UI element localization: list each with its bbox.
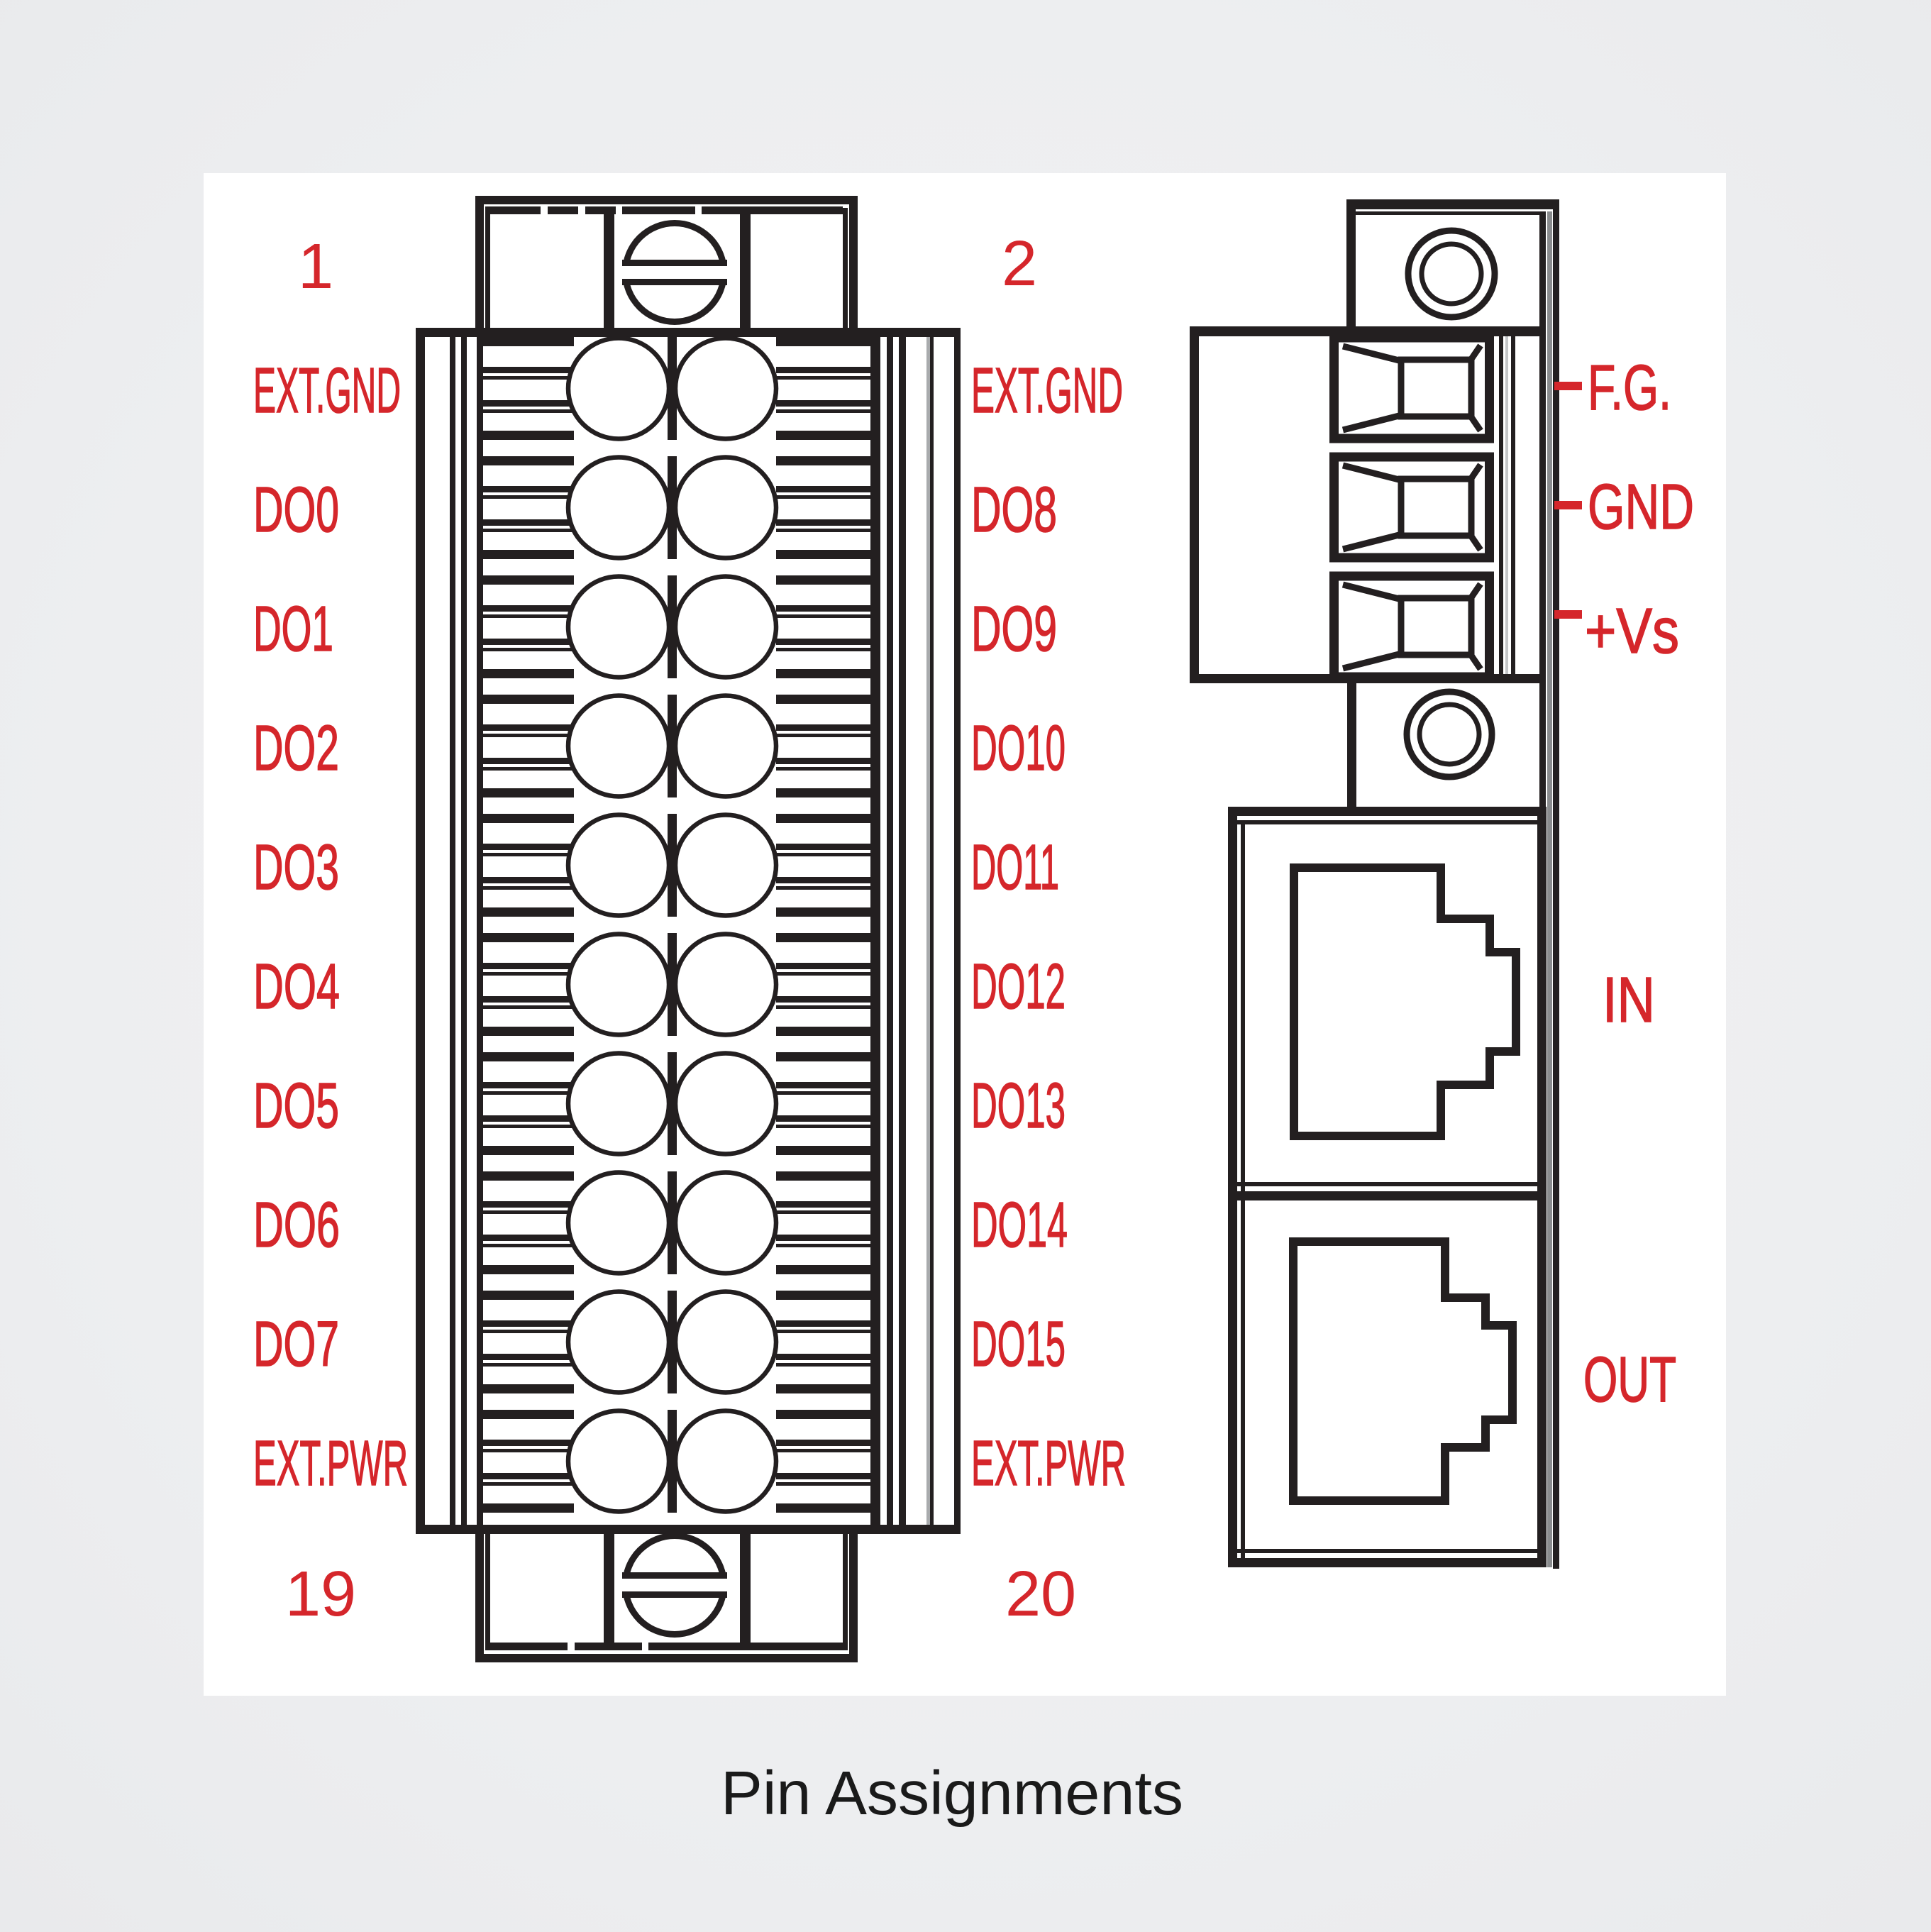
svg-text:OUT: OUT — [1583, 1345, 1676, 1415]
svg-text:DO15: DO15 — [971, 1309, 1066, 1380]
svg-text:EXT.GND: EXT.GND — [971, 355, 1123, 426]
svg-text:EXT.PWR: EXT.PWR — [971, 1428, 1126, 1499]
svg-text:DO8: DO8 — [971, 475, 1057, 546]
svg-text:DO3: DO3 — [253, 832, 339, 903]
svg-text:DO14: DO14 — [971, 1190, 1068, 1261]
svg-text:DO9: DO9 — [971, 594, 1057, 665]
svg-text:DO7: DO7 — [253, 1309, 339, 1380]
svg-text:Pin Assignments: Pin Assignments — [721, 1759, 1183, 1828]
svg-text:DO11: DO11 — [971, 832, 1059, 903]
svg-text:19: 19 — [285, 1559, 356, 1630]
svg-text:IN: IN — [1603, 965, 1655, 1036]
svg-text:+Vs: +Vs — [1585, 596, 1679, 667]
svg-text:20: 20 — [1005, 1559, 1076, 1630]
svg-text:DO4: DO4 — [253, 951, 340, 1022]
svg-text:GND: GND — [1588, 472, 1694, 543]
svg-text:DO2: DO2 — [253, 713, 339, 784]
svg-text:DO10: DO10 — [971, 713, 1066, 784]
svg-text:DO0: DO0 — [253, 475, 339, 546]
svg-text:DO5: DO5 — [253, 1071, 339, 1142]
svg-text:2: 2 — [1002, 228, 1037, 299]
svg-text:DO6: DO6 — [253, 1190, 340, 1261]
svg-text:DO12: DO12 — [971, 951, 1066, 1022]
svg-text:DO1: DO1 — [253, 594, 333, 665]
svg-text:1: 1 — [298, 231, 333, 302]
svg-text:EXT.PWR: EXT.PWR — [253, 1428, 408, 1499]
svg-text:EXT.GND: EXT.GND — [253, 355, 401, 426]
svg-text:DO13: DO13 — [971, 1071, 1066, 1142]
svg-text:F.G.: F.G. — [1588, 353, 1671, 424]
